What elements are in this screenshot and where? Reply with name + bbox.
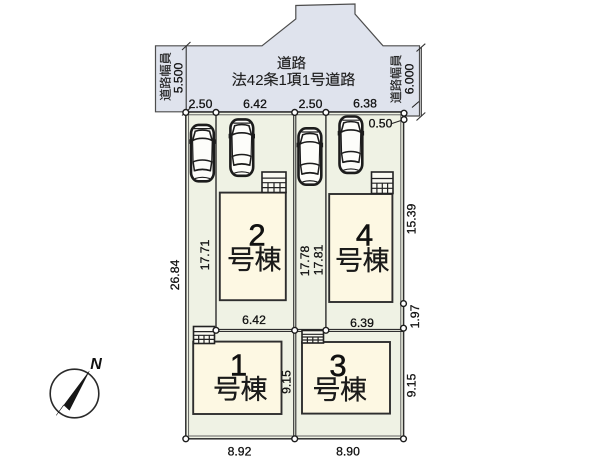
- svg-text:4: 4: [356, 218, 373, 253]
- svg-text:0.50: 0.50: [369, 117, 393, 131]
- svg-text:15.39: 15.39: [405, 204, 419, 235]
- svg-text:17.71: 17.71: [198, 240, 212, 271]
- svg-text:17.78: 17.78: [298, 246, 312, 277]
- svg-text:6.000: 6.000: [402, 64, 416, 95]
- svg-text:5.500: 5.500: [171, 63, 185, 94]
- svg-text:8.92: 8.92: [228, 445, 252, 459]
- svg-text:N: N: [90, 356, 102, 373]
- svg-text:6.38: 6.38: [353, 97, 377, 111]
- svg-text:9.15: 9.15: [279, 370, 293, 394]
- svg-text:2.50: 2.50: [189, 97, 213, 111]
- svg-text:1.97: 1.97: [408, 304, 422, 328]
- svg-text:8.90: 8.90: [336, 445, 360, 459]
- svg-text:1: 1: [279, 72, 287, 89]
- svg-text:2.50: 2.50: [299, 97, 323, 111]
- svg-text:6.42: 6.42: [243, 97, 267, 111]
- svg-text:2: 2: [248, 218, 265, 253]
- svg-text:9.15: 9.15: [405, 373, 419, 397]
- svg-text:6.39: 6.39: [350, 316, 374, 330]
- svg-text:2: 2: [255, 72, 263, 89]
- svg-text:26.84: 26.84: [168, 260, 182, 291]
- svg-text:6.42: 6.42: [242, 313, 266, 327]
- svg-text:4: 4: [247, 72, 255, 89]
- svg-text:1: 1: [302, 72, 310, 89]
- svg-text:17.81: 17.81: [311, 245, 325, 276]
